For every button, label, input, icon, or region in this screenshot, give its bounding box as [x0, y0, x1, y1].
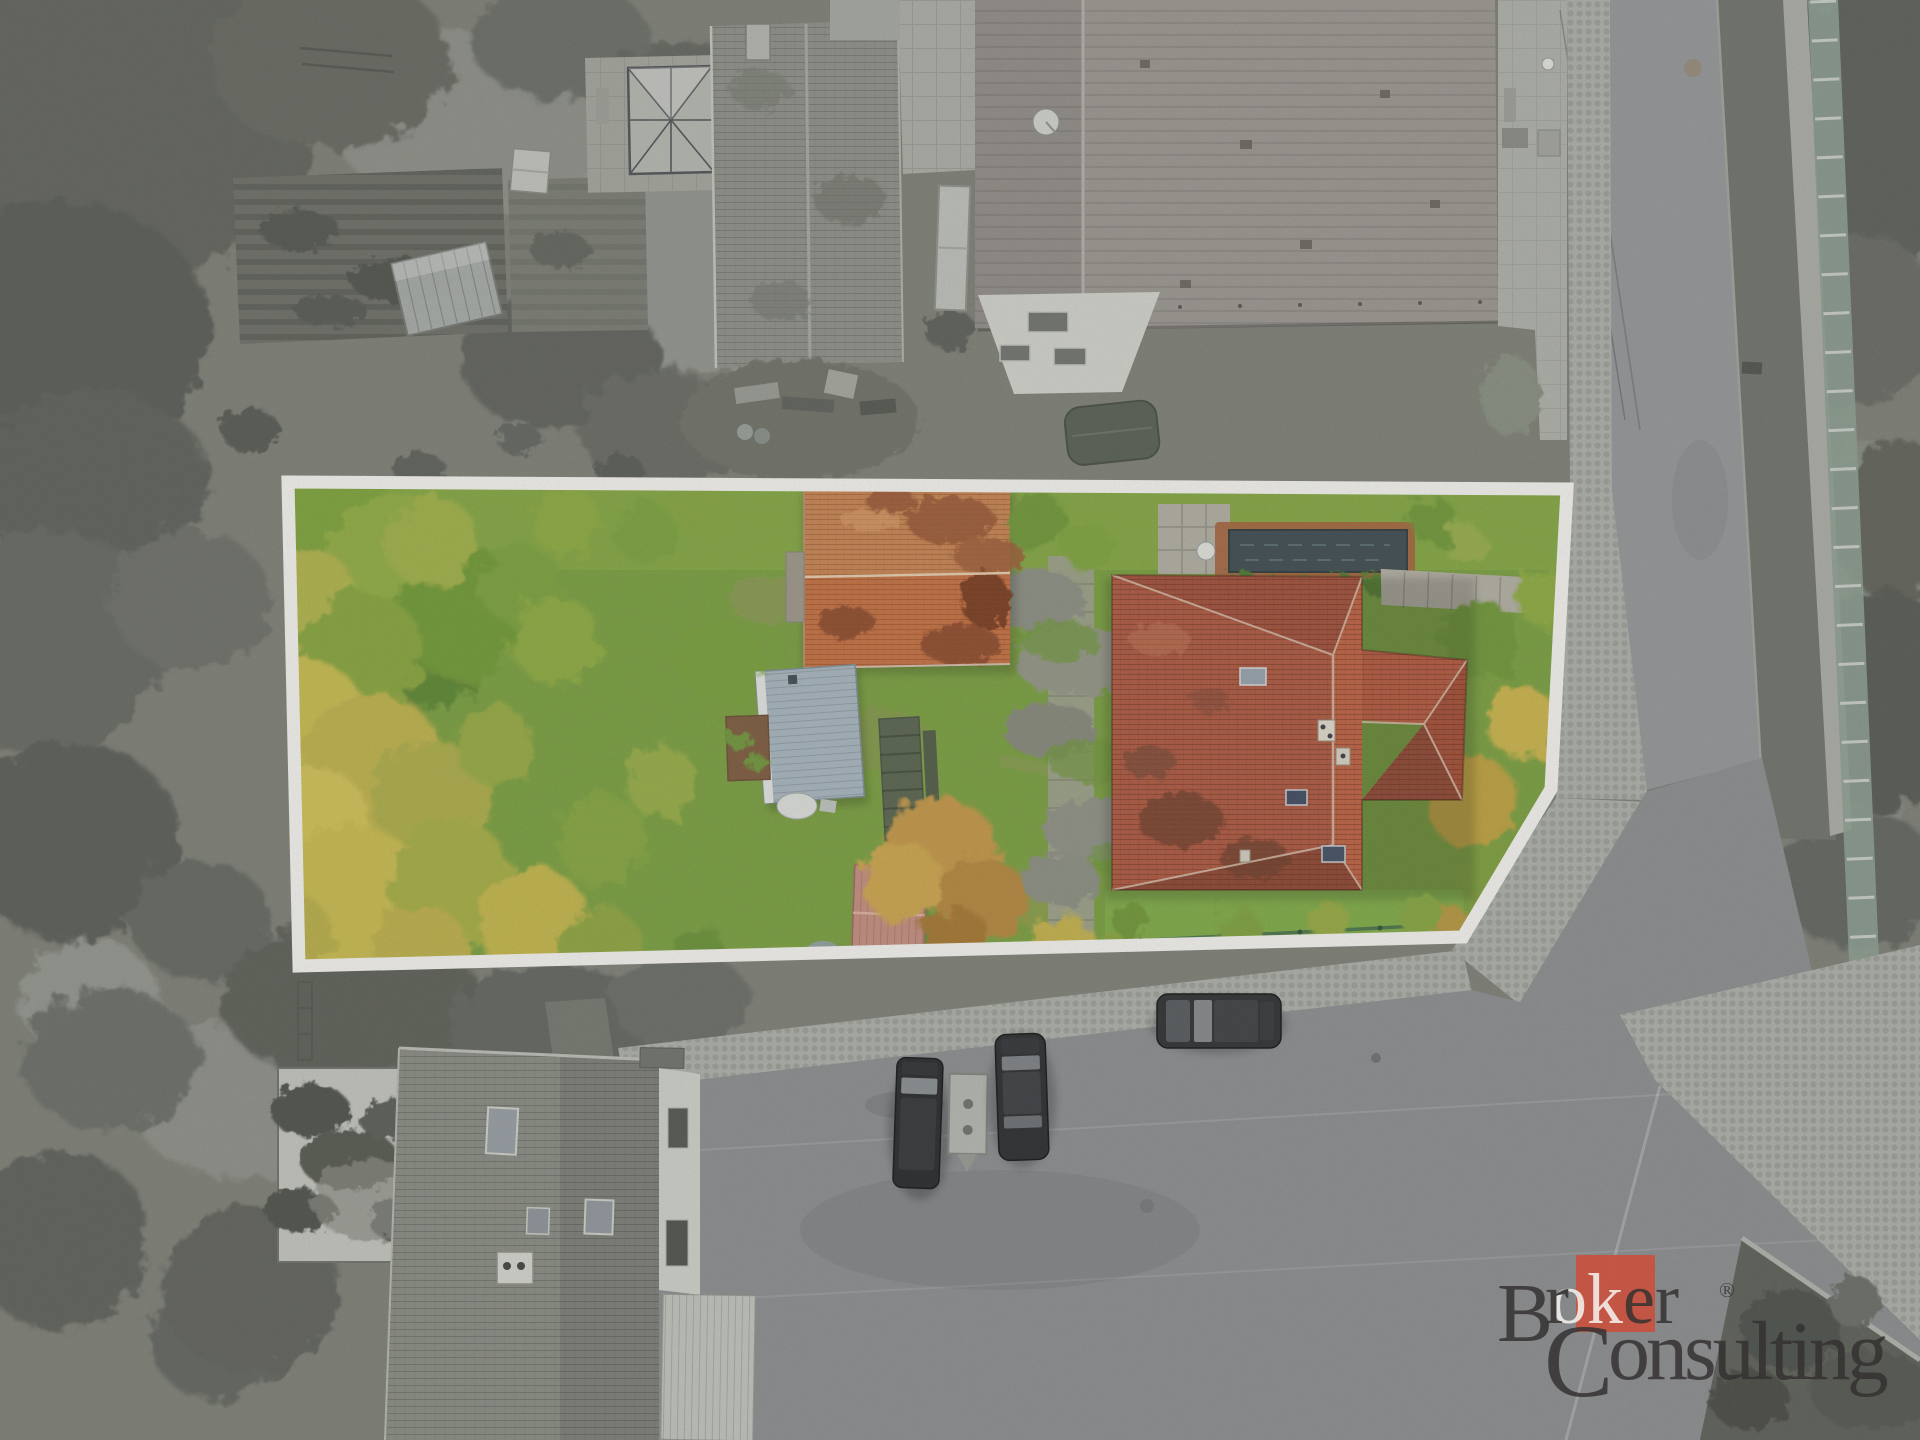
photo-grain-light [0, 0, 1920, 1440]
aerial-photo: B roker ® C onsulting [0, 0, 1920, 1440]
